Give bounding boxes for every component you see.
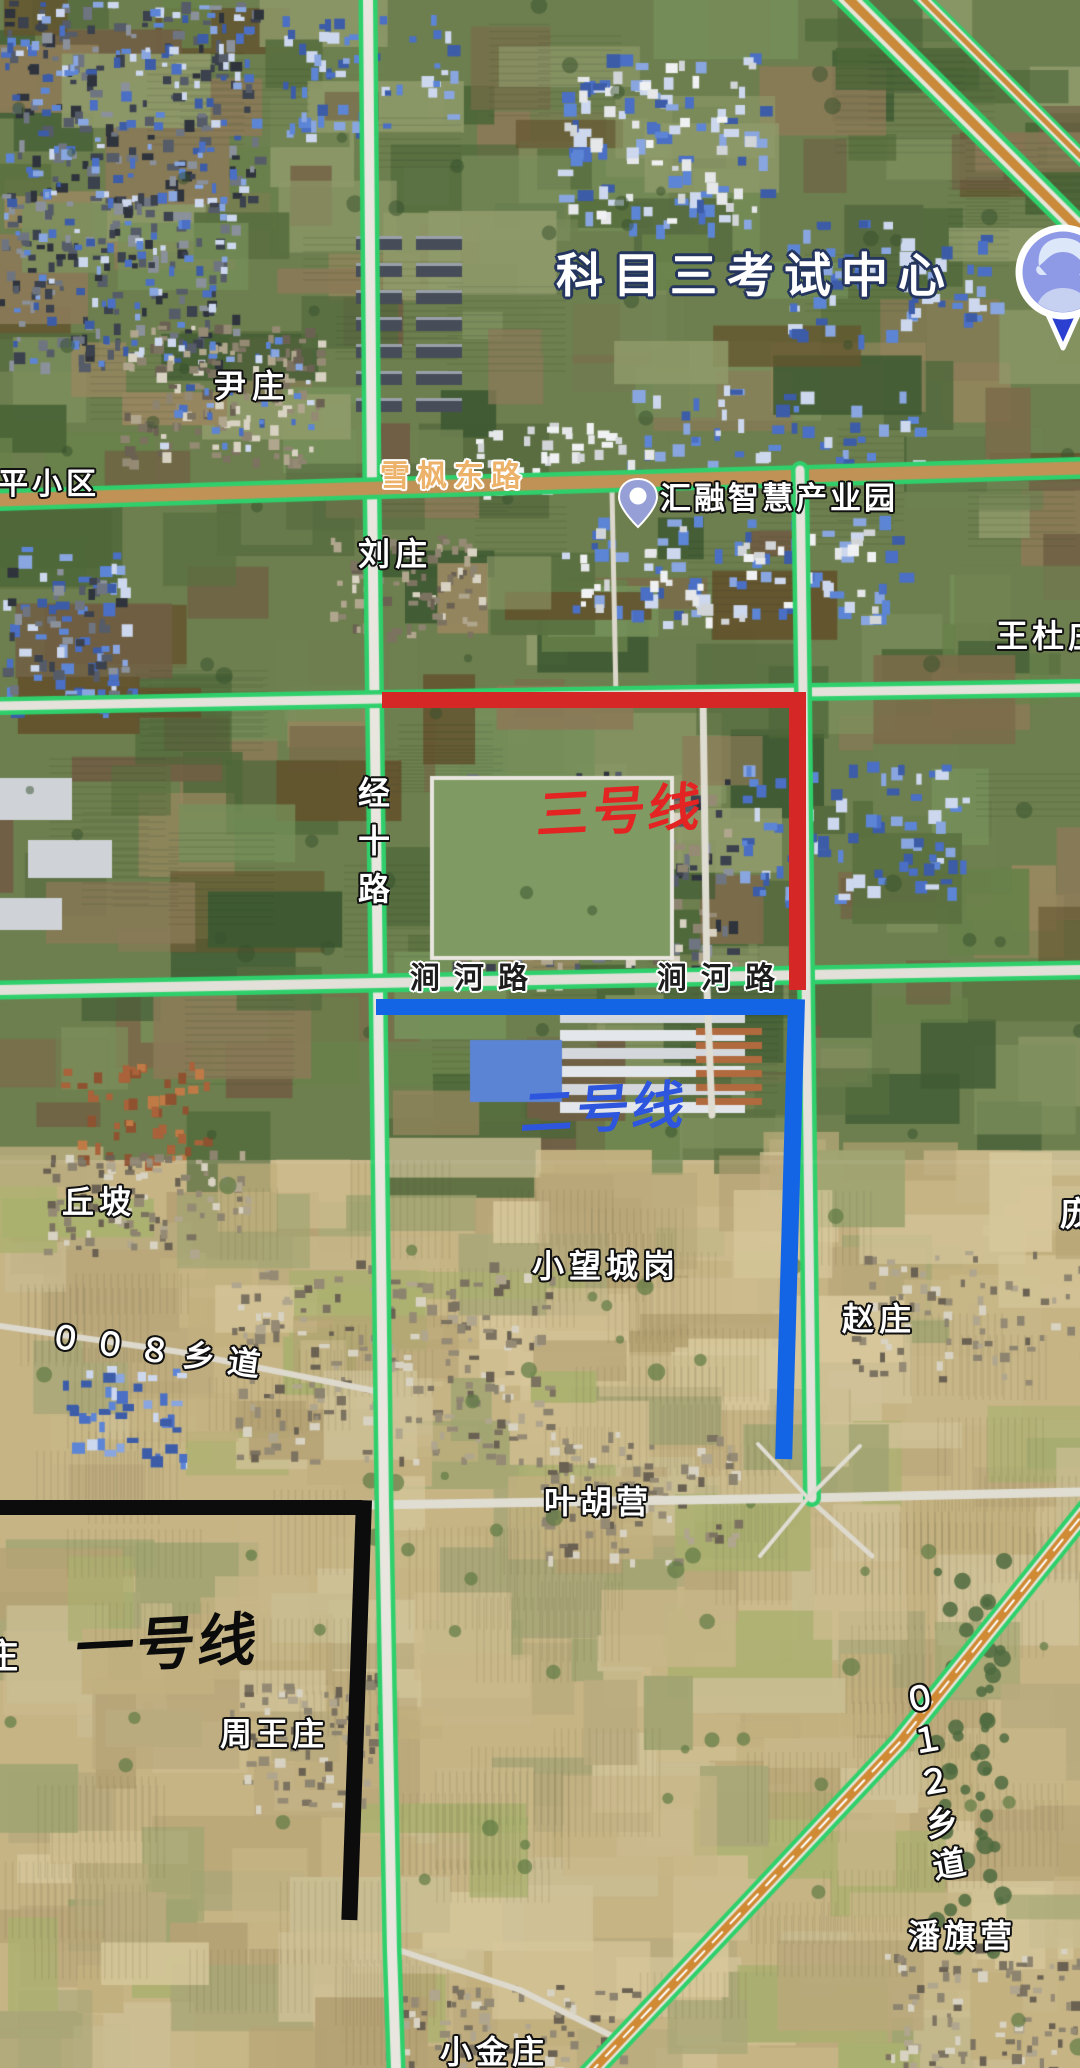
route-line3-vertical <box>789 692 806 990</box>
label-zhaozhuang: 赵庄 <box>842 1303 916 1335</box>
label-pingxiaoqu: 平小区 <box>0 470 100 500</box>
label-road-jianhelu-east: 涧河路 <box>657 964 789 994</box>
route-line3-horizontal <box>382 692 806 708</box>
label-road-xuefengdonglu: 雪枫东路 <box>380 462 528 492</box>
label-qiupo: 丘坡 <box>62 1186 136 1218</box>
label-liuzhuang: 刘庄 <box>358 538 432 570</box>
route-line1-horizontal <box>0 1500 362 1515</box>
label-route-line1: 一号线 <box>72 1611 262 1678</box>
label-zhouwangzhuang: 周王庄 <box>220 1718 328 1750</box>
label-road-jianhelu-west: 涧河路 <box>410 964 542 994</box>
label-zhuang-partial: 庄 <box>0 1640 18 1674</box>
user-avatar-pin[interactable] <box>1013 222 1080 354</box>
route-line2-horizontal <box>376 999 792 1015</box>
map-viewport: 科目三考试中心 尹庄 平小区 雪枫东路 汇融智慧产业园 刘庄 王杜庄 经十路 三… <box>0 0 1080 2068</box>
label-panqiying: 潘旗营 <box>908 1920 1016 1952</box>
poi-pin-huirong[interactable] <box>616 477 660 529</box>
label-pang-partial: 庞 <box>1060 1198 1080 1232</box>
label-poi-huirong[interactable]: 汇融智慧产业园 <box>660 483 898 514</box>
label-route-line2: 二号线 <box>519 1080 691 1141</box>
label-yinzhuang: 尹庄 <box>214 370 290 402</box>
label-xiaojinzhuang: 小金庄 <box>440 2036 548 2068</box>
label-route-line3: 三号线 <box>535 782 707 843</box>
label-xiaowangchenggang: 小望城岗 <box>532 1250 680 1282</box>
label-wangduzhuang: 王杜庄 <box>996 620 1080 652</box>
label-road-jingshilu: 经十路 <box>356 776 388 920</box>
label-yehuying: 叶胡营 <box>544 1486 652 1518</box>
map-title: 科目三考试中心 <box>556 252 955 299</box>
